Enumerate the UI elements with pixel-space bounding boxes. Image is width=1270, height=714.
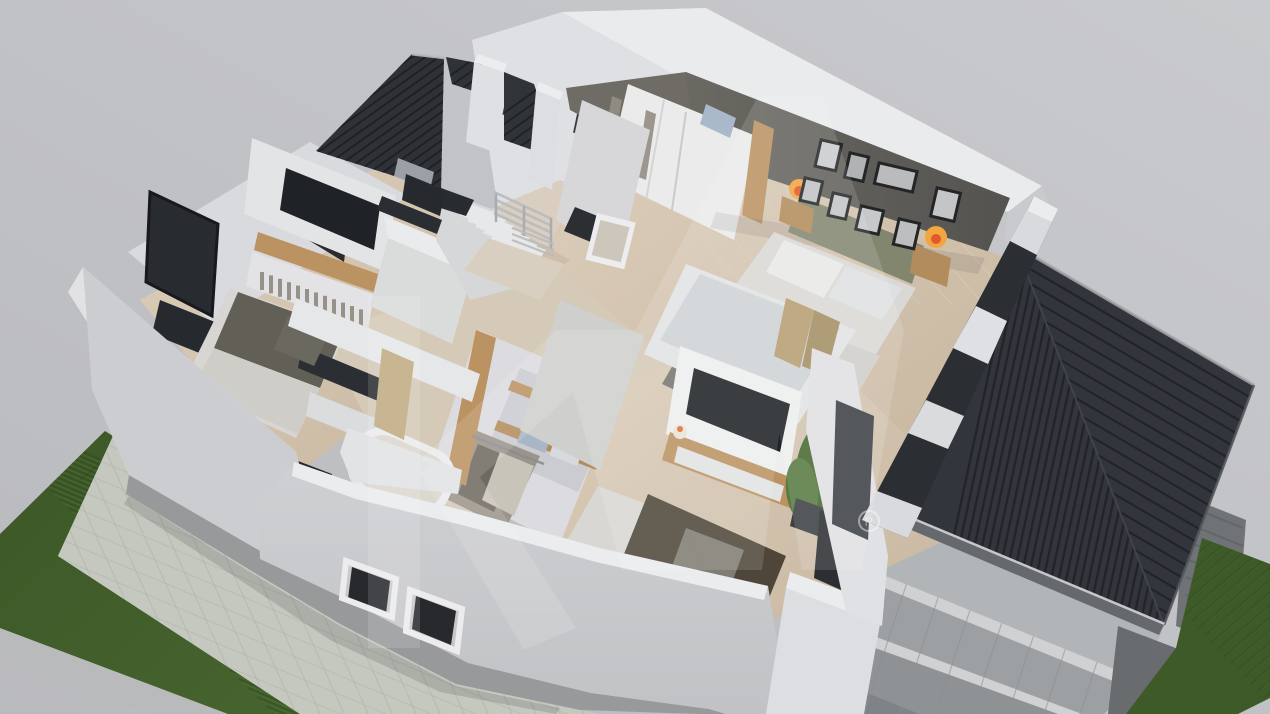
svg-text:R: R xyxy=(865,515,874,529)
